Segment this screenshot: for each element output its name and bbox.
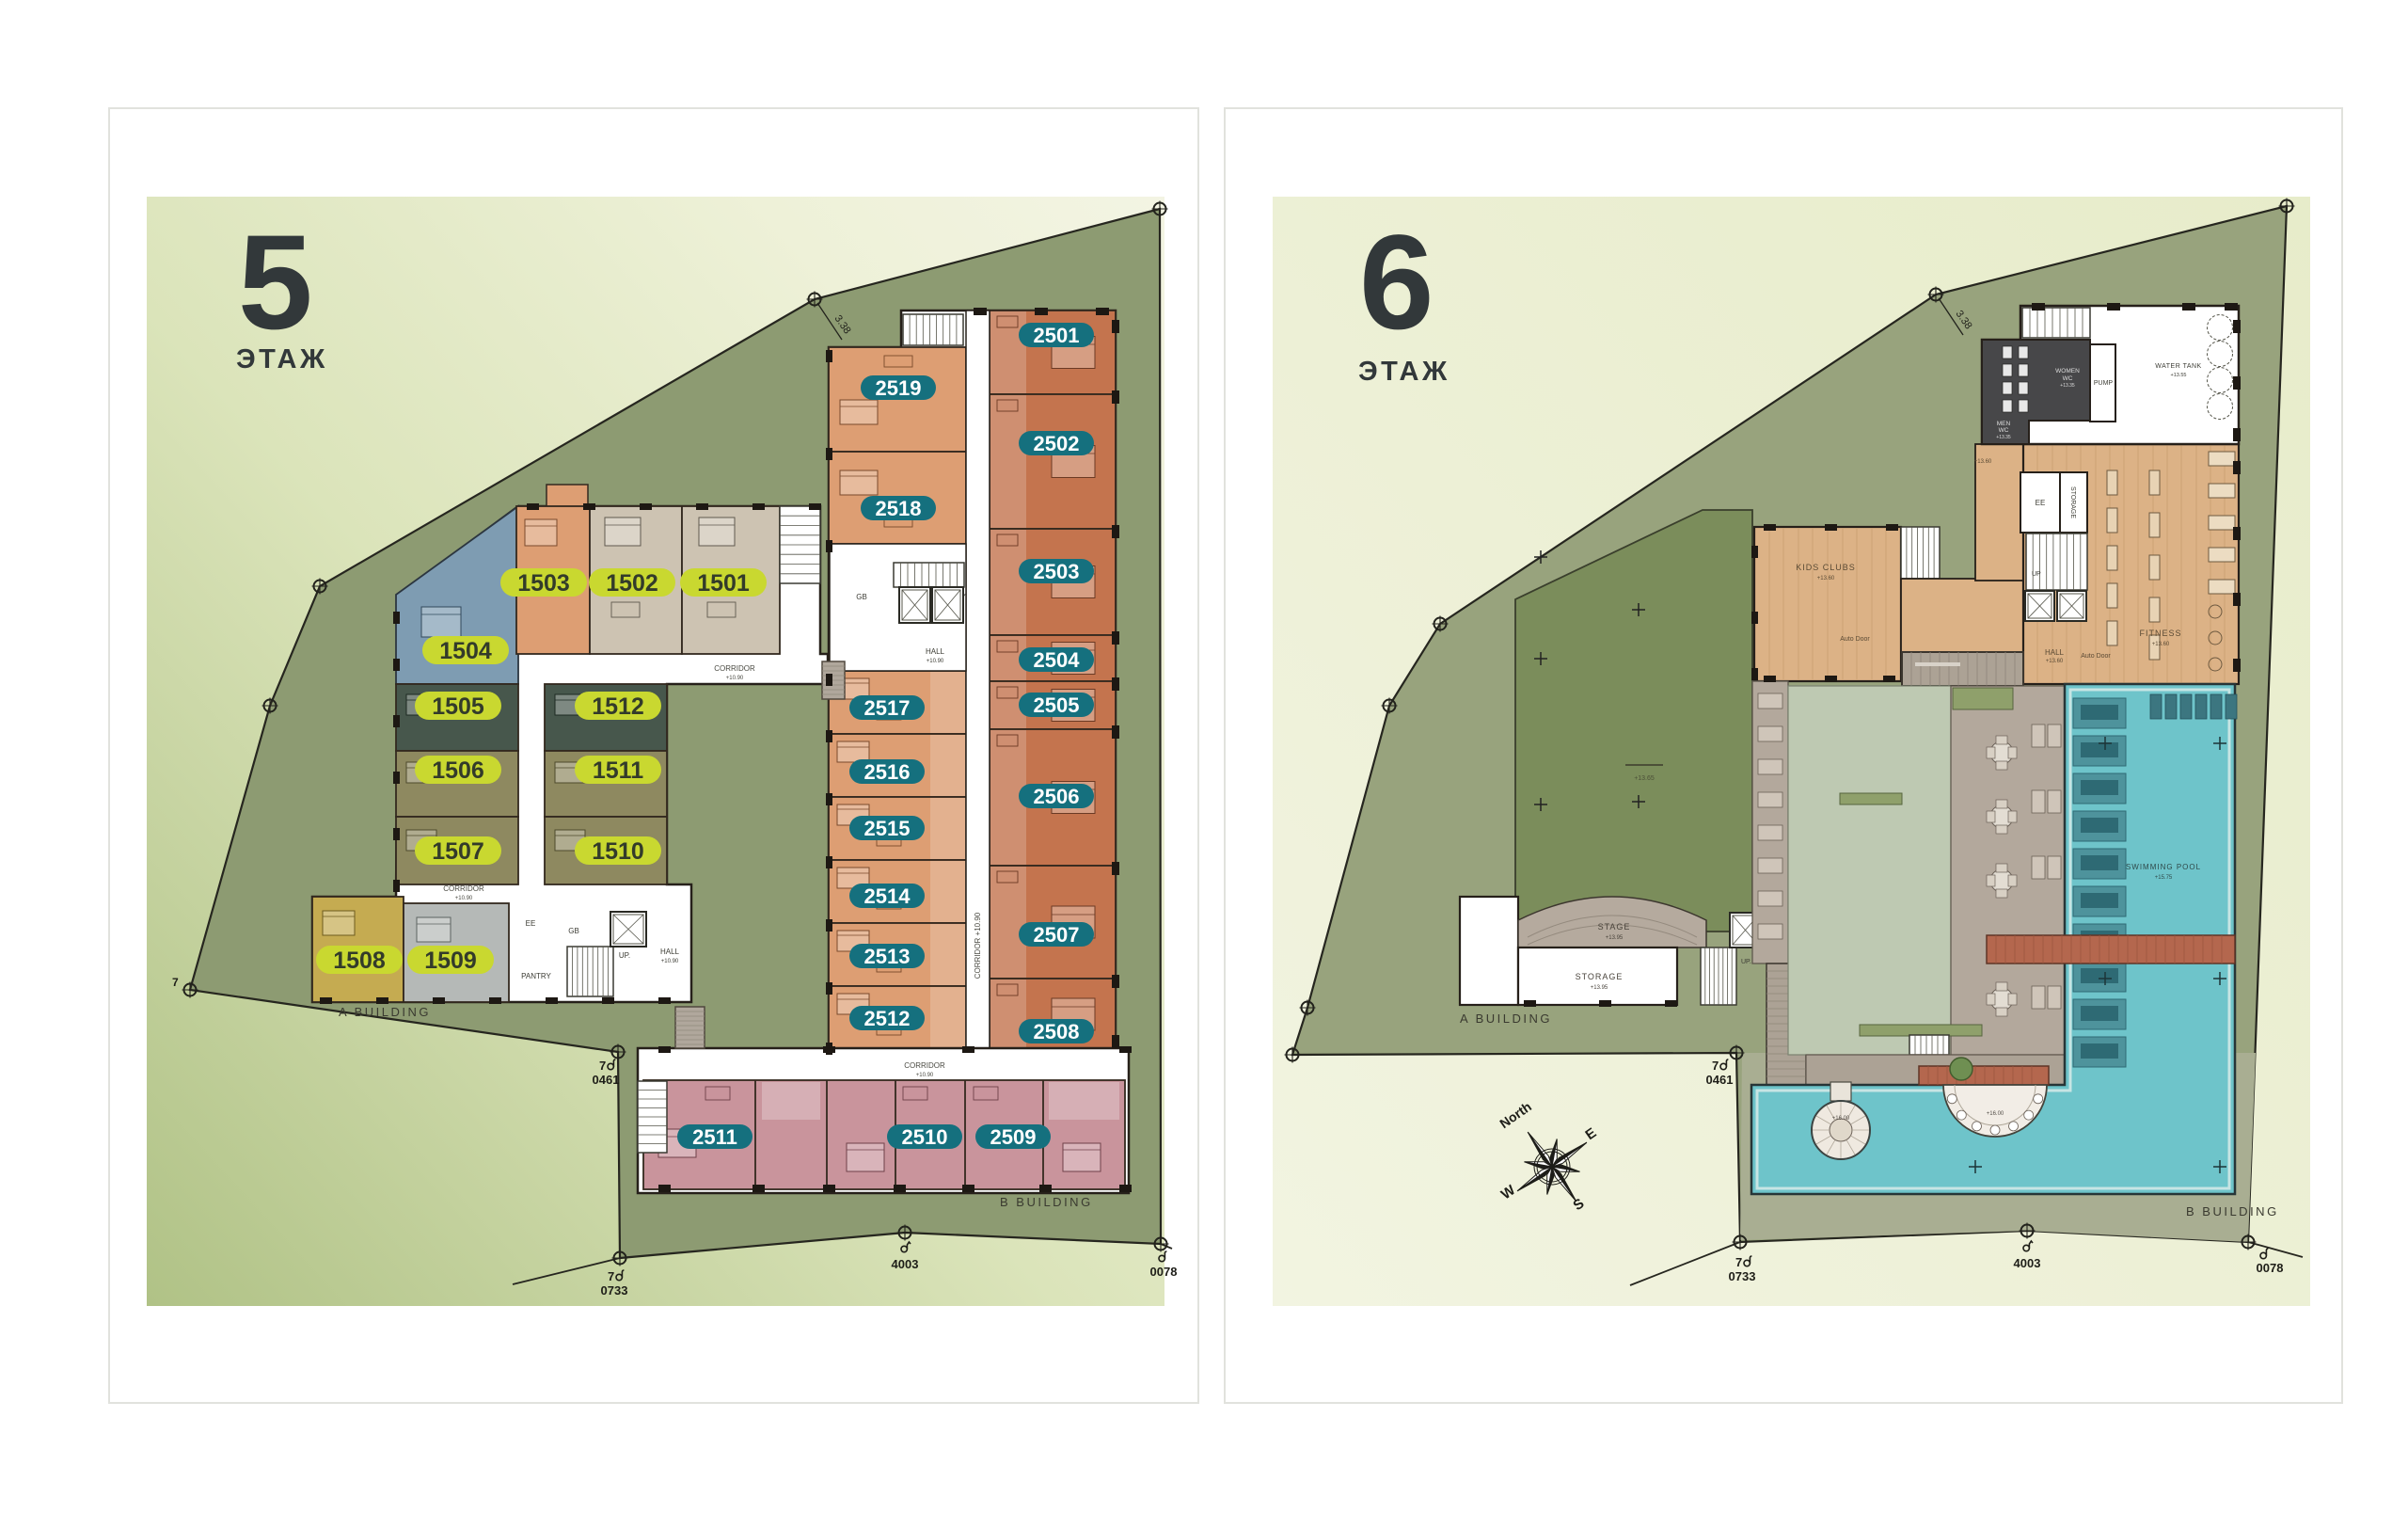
svg-text:2508: 2508 bbox=[1034, 1020, 1080, 1043]
svg-text:+16.00: +16.00 bbox=[1832, 1116, 1850, 1122]
svg-text:+10.90: +10.90 bbox=[455, 896, 473, 901]
svg-text:+10.90: +10.90 bbox=[916, 1073, 934, 1078]
svg-text:2513: 2513 bbox=[864, 945, 911, 968]
svg-text:B BUILDING: B BUILDING bbox=[2186, 1204, 2279, 1218]
svg-text:ЭТАЖ: ЭТАЖ bbox=[1358, 357, 1450, 387]
svg-text:7: 7 bbox=[172, 976, 179, 989]
svg-text:2507: 2507 bbox=[1034, 923, 1080, 947]
svg-text:1501: 1501 bbox=[697, 570, 750, 597]
svg-text:0733: 0733 bbox=[601, 1283, 628, 1298]
svg-text:CORRIDOR: CORRIDOR bbox=[714, 664, 755, 673]
svg-text:WOMEN: WOMEN bbox=[2055, 368, 2080, 374]
svg-text:A BUILDING: A BUILDING bbox=[1460, 1011, 1552, 1026]
svg-text:1511: 1511 bbox=[593, 757, 643, 784]
svg-text:1508: 1508 bbox=[333, 948, 386, 974]
svg-text:CORRIDOR: CORRIDOR bbox=[904, 1061, 945, 1070]
svg-text:+15.75: +15.75 bbox=[2155, 875, 2173, 881]
svg-text:GB: GB bbox=[856, 593, 867, 601]
svg-text:SWIMMING POOL: SWIMMING POOL bbox=[2126, 863, 2201, 871]
svg-text:2506: 2506 bbox=[1034, 785, 1080, 808]
svg-text:+10.90: +10.90 bbox=[661, 959, 679, 964]
svg-text:HALL: HALL bbox=[2045, 648, 2065, 657]
svg-text:4003: 4003 bbox=[2014, 1256, 2041, 1270]
svg-text:1503: 1503 bbox=[517, 570, 570, 597]
svg-text:2518: 2518 bbox=[876, 497, 922, 520]
svg-text:+13.35: +13.35 bbox=[2060, 383, 2075, 389]
svg-text:WC: WC bbox=[1999, 427, 2009, 434]
svg-text:+13.60: +13.60 bbox=[1974, 459, 1992, 465]
svg-text:+13.55: +13.55 bbox=[2171, 373, 2187, 378]
svg-text:PANTRY: PANTRY bbox=[521, 972, 551, 980]
svg-text:1510: 1510 bbox=[592, 838, 644, 865]
svg-text:+16.00: +16.00 bbox=[1987, 1111, 2004, 1117]
svg-text:STORAGE: STORAGE bbox=[1576, 972, 1624, 981]
svg-text:EE: EE bbox=[526, 919, 536, 928]
svg-text:1504: 1504 bbox=[439, 638, 492, 664]
svg-text:2504: 2504 bbox=[1034, 648, 1081, 672]
svg-text:2509: 2509 bbox=[990, 1125, 1037, 1149]
svg-text:UP.: UP. bbox=[619, 951, 630, 960]
svg-text:4003: 4003 bbox=[892, 1257, 919, 1271]
svg-text:+10.90: +10.90 bbox=[726, 676, 744, 681]
svg-text:5: 5 bbox=[238, 208, 313, 358]
svg-text:Auto Door: Auto Door bbox=[2081, 653, 2111, 660]
svg-text:UP: UP bbox=[2032, 571, 2041, 578]
svg-text:6: 6 bbox=[1359, 208, 1434, 358]
svg-text:+13.95: +13.95 bbox=[1591, 985, 1608, 991]
svg-text:PUMP: PUMP bbox=[2094, 380, 2114, 387]
svg-text:Auto Door: Auto Door bbox=[1840, 636, 1870, 643]
svg-text:+13.60: +13.60 bbox=[2152, 642, 2170, 647]
svg-text:B BUILDING: B BUILDING bbox=[1000, 1195, 1093, 1209]
svg-text:2515: 2515 bbox=[864, 817, 911, 840]
svg-text:2505: 2505 bbox=[1034, 693, 1080, 717]
svg-text:UP.: UP. bbox=[1741, 959, 1751, 965]
svg-text:2516: 2516 bbox=[864, 760, 911, 784]
svg-text:1506: 1506 bbox=[432, 757, 484, 784]
svg-text:+10.90: +10.90 bbox=[927, 659, 944, 664]
svg-text:0733: 0733 bbox=[1729, 1269, 1756, 1283]
svg-text:+13.65: +13.65 bbox=[1634, 775, 1655, 782]
svg-text:2502: 2502 bbox=[1034, 432, 1080, 455]
svg-text:7: 7 bbox=[1735, 1255, 1742, 1269]
svg-text:MEN: MEN bbox=[1997, 421, 2011, 427]
svg-text:KIDS CLUBS: KIDS CLUBS bbox=[1796, 563, 1856, 572]
svg-text:CORRIDOR: CORRIDOR bbox=[443, 884, 484, 893]
svg-text:1505: 1505 bbox=[432, 693, 484, 720]
svg-text:WATER TANK: WATER TANK bbox=[2155, 363, 2201, 370]
svg-text:7: 7 bbox=[608, 1269, 614, 1283]
svg-text:CORRIDOR +10.90: CORRIDOR +10.90 bbox=[974, 912, 982, 979]
svg-text:2511: 2511 bbox=[692, 1125, 737, 1149]
svg-text:1512: 1512 bbox=[592, 693, 644, 720]
svg-text:2503: 2503 bbox=[1034, 560, 1080, 583]
svg-text:FITNESS: FITNESS bbox=[2139, 629, 2181, 638]
svg-text:WC: WC bbox=[2063, 375, 2073, 382]
svg-text:0461: 0461 bbox=[1706, 1073, 1734, 1087]
svg-text:HALL: HALL bbox=[926, 647, 945, 656]
svg-text:ЭТАЖ: ЭТАЖ bbox=[236, 344, 328, 374]
svg-text:2514: 2514 bbox=[864, 884, 911, 908]
svg-text:2512: 2512 bbox=[864, 1007, 911, 1030]
svg-text:+13.95: +13.95 bbox=[1606, 935, 1624, 941]
svg-text:2501: 2501 bbox=[1034, 324, 1080, 347]
svg-text:2517: 2517 bbox=[864, 696, 911, 720]
svg-text:GB: GB bbox=[568, 927, 579, 935]
svg-text:2519: 2519 bbox=[876, 376, 922, 400]
svg-text:1509: 1509 bbox=[424, 948, 477, 974]
svg-text:0078: 0078 bbox=[1150, 1265, 1178, 1279]
svg-text:+13.35: +13.35 bbox=[1996, 435, 2011, 440]
svg-text:7: 7 bbox=[1712, 1059, 1719, 1073]
svg-text:+13.60: +13.60 bbox=[2046, 659, 2064, 664]
svg-text:1502: 1502 bbox=[606, 570, 658, 597]
svg-text:EE: EE bbox=[2036, 499, 2046, 507]
svg-text:7: 7 bbox=[599, 1059, 606, 1073]
svg-text:STAGE: STAGE bbox=[1598, 922, 1631, 932]
svg-text:0461: 0461 bbox=[593, 1073, 620, 1087]
svg-text:2510: 2510 bbox=[902, 1125, 948, 1149]
svg-text:1507: 1507 bbox=[432, 838, 484, 865]
svg-text:+13.60: +13.60 bbox=[1817, 576, 1835, 581]
svg-text:0078: 0078 bbox=[2257, 1261, 2284, 1275]
svg-text:A BUILDING: A BUILDING bbox=[339, 1005, 431, 1019]
svg-text:STORAGE: STORAGE bbox=[2069, 486, 2076, 518]
svg-text:HALL: HALL bbox=[660, 948, 680, 956]
